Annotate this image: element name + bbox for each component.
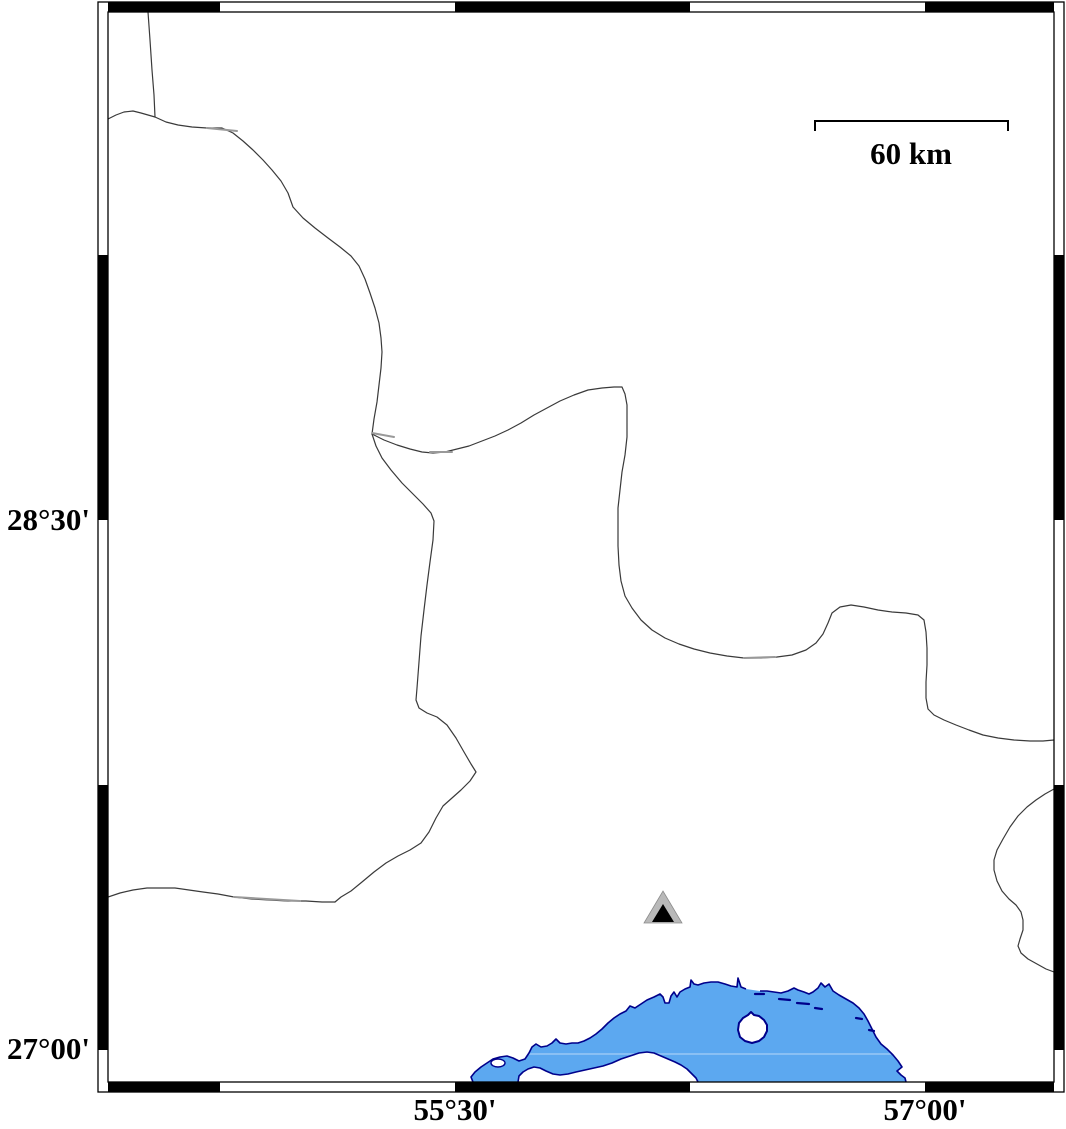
coast-dash bbox=[815, 1008, 822, 1009]
map-content bbox=[108, 12, 1054, 1082]
boundary-overlap-segment bbox=[744, 657, 775, 658]
frame-tick-left bbox=[98, 785, 108, 1050]
boundary-line bbox=[155, 117, 382, 434]
boundary-line bbox=[108, 111, 155, 119]
longitude-label-57-00: 57°00' bbox=[845, 1093, 1005, 1127]
coast-dash bbox=[779, 999, 790, 1000]
latitude-label-28-30: 28°30' bbox=[0, 503, 90, 537]
frame-tick-bottom bbox=[108, 1082, 220, 1092]
boundary-line bbox=[335, 434, 476, 902]
scalebar-bracket bbox=[815, 121, 1008, 131]
boundary-line bbox=[994, 789, 1054, 972]
frame-tick-bottom bbox=[925, 1082, 1054, 1092]
frame-tick-left bbox=[98, 255, 108, 520]
longitude-label-55-30: 55°30' bbox=[375, 1093, 535, 1127]
map-figure: 28°30' 27°00' 55°30' 57°00' 60 km bbox=[0, 0, 1066, 1129]
latitude-label-27-00: 27°00' bbox=[0, 1032, 90, 1066]
sea-polygon bbox=[471, 978, 906, 1082]
coast-dash bbox=[797, 1003, 809, 1004]
frame-tick-right bbox=[1054, 255, 1064, 520]
coast-dash bbox=[856, 1018, 862, 1019]
boundary-line bbox=[148, 12, 155, 117]
boundary-line bbox=[372, 387, 1054, 741]
frame-inner-border bbox=[108, 12, 1054, 1082]
boundary-line bbox=[108, 888, 335, 902]
islet bbox=[491, 1059, 505, 1067]
frame-tick-top bbox=[925, 2, 1054, 12]
frame-tick-bottom bbox=[455, 1082, 690, 1092]
coast-dash bbox=[869, 1030, 874, 1031]
frame-tick-right bbox=[1054, 785, 1064, 1050]
frame-tick-top bbox=[108, 2, 220, 12]
frame-tick-top bbox=[455, 2, 690, 12]
scalebar-label: 60 km bbox=[831, 137, 991, 171]
